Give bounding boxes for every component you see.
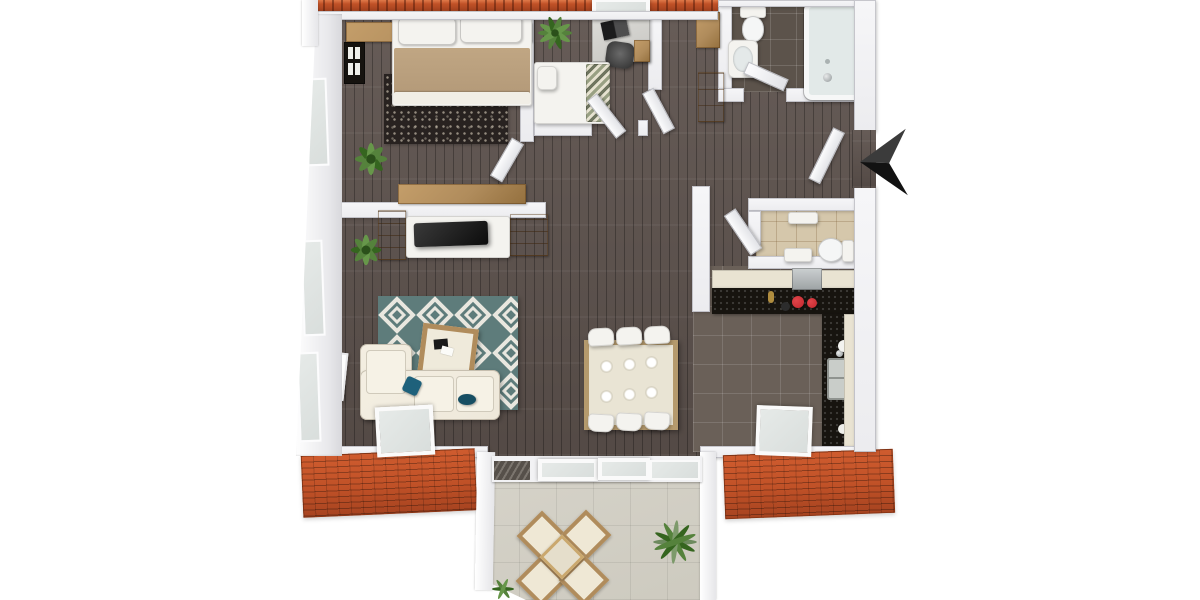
tub-drain [825, 59, 830, 64]
kitchen-faucet [768, 291, 774, 303]
left-window-1 [304, 78, 329, 167]
dining-chair [644, 411, 671, 430]
red-pot-1 [792, 296, 804, 308]
bed1-wall-window-art [344, 42, 365, 84]
wall-kitchen-hall [692, 186, 710, 312]
dining-plate [645, 356, 658, 369]
bed1-sideboard [398, 184, 526, 204]
dining-chair [644, 325, 671, 344]
kitchen-open-window [755, 405, 813, 457]
dining-chair [616, 412, 643, 431]
teal-round-pillow [458, 394, 476, 405]
left-window-2 [300, 240, 325, 337]
terrace-open-doorway [494, 461, 530, 480]
window-art-pane [348, 63, 353, 75]
red-pot-2 [807, 298, 817, 308]
chimney-block [302, 0, 318, 46]
wc-washbasin [784, 248, 812, 262]
wall-right-lower [854, 186, 876, 452]
dining-chair [588, 327, 615, 346]
desk-drawer-unit [634, 40, 650, 62]
wc-toilet-tank [842, 240, 854, 262]
lower-right-roof [723, 449, 895, 519]
dining-plate [600, 390, 613, 403]
sofa-cushion-chaise [366, 350, 406, 394]
wall-bed2-right [648, 14, 662, 90]
kitchen-cabinet-run [712, 270, 856, 290]
media-shelf-left [378, 210, 406, 260]
dining-plate [623, 388, 636, 401]
wall-right-upper [854, 0, 876, 132]
window-art-pane [355, 63, 360, 75]
wc-toilet-bowl [818, 238, 844, 262]
bed2-pillow [537, 66, 557, 90]
left-window-3 [296, 352, 321, 443]
flat-tv [414, 221, 489, 248]
wall-bed2-bottom-b [638, 120, 648, 136]
wall-bathroom-top [718, 0, 858, 7]
wall-wc-top [748, 198, 858, 211]
terrace-glass-door-1 [538, 459, 598, 481]
hall-wardrobe-lower [698, 72, 724, 122]
dining-plate [645, 386, 658, 399]
wall-left-exterior [294, 14, 342, 456]
tub-faucet [823, 73, 832, 82]
dining-chair [616, 326, 643, 345]
bed1-pillow-left [398, 17, 456, 45]
dark-pot [781, 302, 790, 311]
wall-top [316, 11, 718, 20]
living-open-window [375, 405, 436, 458]
extractor-hood [792, 268, 822, 290]
entrance-arrow-icon [858, 124, 912, 198]
window-art-pane [355, 47, 360, 59]
terrace-door-band [492, 456, 702, 482]
dining-chair [588, 413, 615, 432]
terrace-glass-fixed [650, 460, 700, 480]
dining-plate [600, 360, 613, 373]
terrace-glass-door-2 [598, 458, 650, 480]
window-art-pane [348, 47, 353, 59]
bath-toilet-bowl [742, 16, 764, 42]
dining-plate [623, 358, 636, 371]
bed1-foot-fold [394, 92, 530, 104]
floor-plan [0, 0, 1200, 600]
wc-shelf [788, 212, 818, 224]
terrace-right-wall [700, 452, 716, 600]
coffee-table-paper [440, 345, 454, 356]
bed1-blanket [394, 48, 530, 94]
lower-left-roof [301, 448, 478, 518]
media-shelf-right [510, 214, 548, 256]
